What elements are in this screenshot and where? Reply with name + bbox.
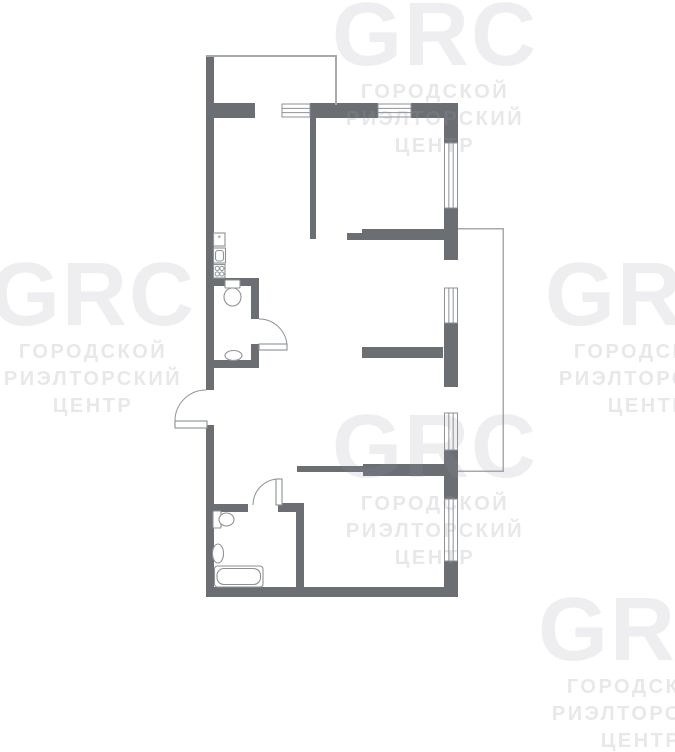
exterior-wall-right-c bbox=[444, 323, 458, 387]
wc-door-leaf bbox=[259, 344, 287, 350]
interior-wall-c bbox=[363, 464, 444, 476]
watermark-text-line: ЦЕНТР bbox=[601, 731, 675, 751]
exterior-wall-top-b bbox=[310, 103, 378, 118]
interior-wall-kitchen bbox=[310, 118, 316, 239]
exterior-wall-bottom bbox=[206, 587, 458, 597]
wc-wall-right-upper bbox=[251, 286, 259, 319]
bath-toilet-bowl-icon bbox=[219, 513, 234, 526]
wc-sink-icon bbox=[225, 351, 242, 361]
watermark-text-line: РИЭЛТОРСКИЙ bbox=[552, 704, 675, 724]
wc-toilet-tank-icon bbox=[225, 280, 240, 288]
stove-burner-icon bbox=[220, 272, 224, 276]
wc-wall-bottom bbox=[206, 360, 259, 368]
wc-door-swing-arc bbox=[259, 319, 287, 347]
window-right-3 bbox=[445, 413, 458, 450]
bathroom-wall-right bbox=[296, 503, 304, 588]
bathtub-inner-icon bbox=[217, 569, 261, 585]
window-right-4 bbox=[445, 499, 458, 561]
interior-wall-a-thin bbox=[347, 233, 362, 240]
kitchen-vent-glyph: * bbox=[218, 234, 222, 244]
upper-zone-line-top bbox=[206, 55, 337, 57]
stove-burner-icon bbox=[215, 266, 219, 270]
wc-toilet-bowl-icon bbox=[224, 288, 241, 306]
window-top-1 bbox=[282, 104, 310, 117]
bath-sink-icon bbox=[213, 544, 224, 563]
window-right-2 bbox=[445, 288, 458, 323]
interior-wall-a bbox=[362, 229, 444, 240]
window-top-2 bbox=[378, 104, 411, 117]
entrance-door-swing-arc bbox=[175, 390, 206, 421]
exterior-wall-right-d bbox=[444, 450, 458, 499]
bathroom-door-leaf bbox=[276, 479, 282, 505]
balcony-line-top bbox=[458, 228, 504, 230]
floorplan-svg: * bbox=[0, 0, 675, 662]
exterior-wall-right-b bbox=[444, 208, 458, 260]
stove-burner-icon bbox=[215, 272, 219, 276]
floorplan-image: * GRCГОРОДСКОЙРИЭЛТОРСКИЙЦЕНТРGRCГОРОДСК… bbox=[0, 0, 675, 662]
watermark-text-line: ГОРОДСКОЙ bbox=[567, 677, 675, 697]
stove-burner-icon bbox=[220, 266, 224, 270]
interior-wall-c-thin bbox=[297, 466, 363, 472]
exterior-wall-right-a bbox=[444, 103, 458, 143]
window-right-1 bbox=[445, 143, 458, 208]
entrance-door-leaf bbox=[175, 421, 207, 428]
kitchen-sink-inner-icon bbox=[216, 251, 224, 262]
balcony-line-bottom bbox=[458, 471, 504, 473]
floorplan-page: { "canvas": {"width": 675, "height": 662… bbox=[0, 0, 675, 662]
exterior-wall-top-a bbox=[206, 103, 255, 118]
upper-zone-line-right bbox=[335, 55, 337, 105]
balcony-line-right bbox=[503, 228, 505, 472]
interior-wall-b bbox=[362, 347, 443, 358]
bathroom-door-swing-arc bbox=[253, 479, 279, 505]
